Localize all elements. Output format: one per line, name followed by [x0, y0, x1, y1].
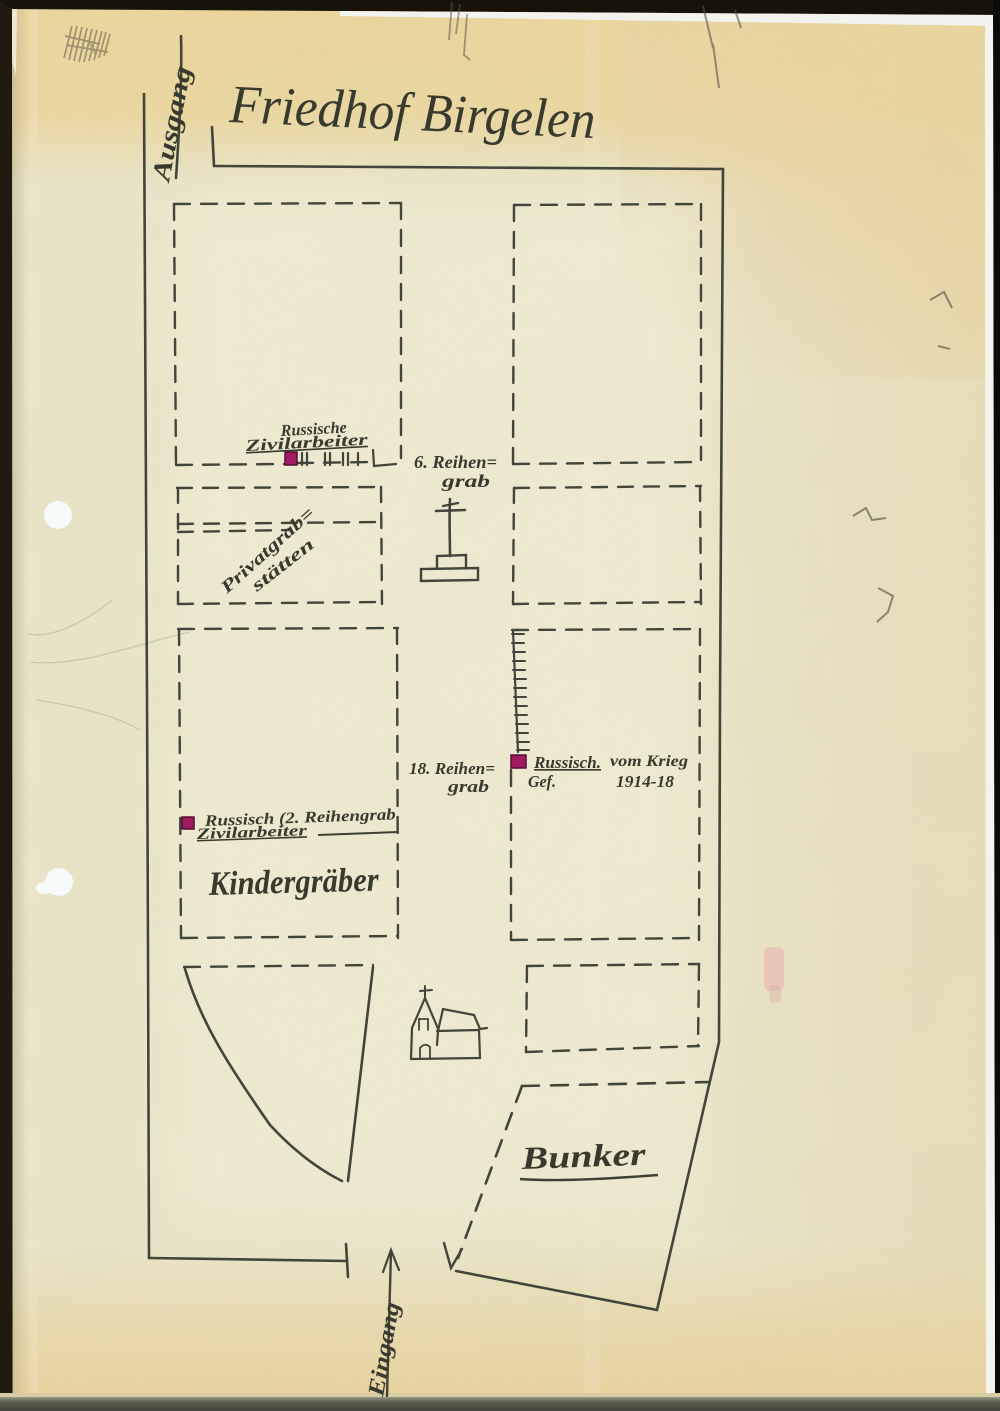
svg-text:Kindergräber: Kindergräber	[207, 862, 379, 903]
svg-text:Gef.: Gef.	[528, 772, 556, 791]
svg-text:Russisch.: Russisch.	[533, 753, 601, 772]
svg-text:1914-18: 1914-18	[616, 772, 674, 791]
svg-text:18. Reihen=: 18. Reihen=	[409, 759, 495, 778]
svg-text:grab: grab	[441, 471, 491, 491]
svg-text:grab: grab	[447, 777, 489, 796]
svg-text:6. Reihen=: 6. Reihen=	[414, 452, 497, 472]
svg-text:vom Krieg: vom Krieg	[610, 753, 688, 770]
svg-text:Bunker: Bunker	[520, 1136, 647, 1176]
